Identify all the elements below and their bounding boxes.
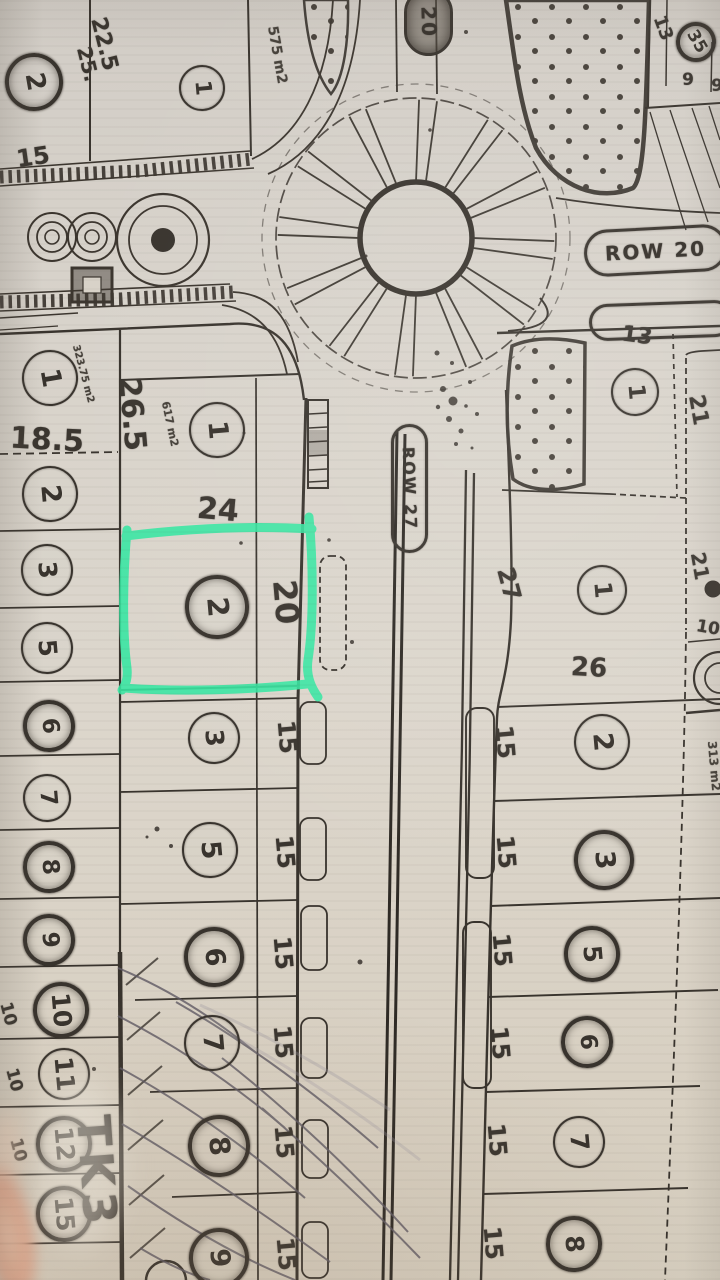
plot-number: 5: [578, 944, 608, 964]
plot-number-circle: 5: [562, 924, 623, 985]
plot-number-circle: 35: [669, 15, 720, 70]
dimension-label: 15: [487, 932, 518, 968]
plot-number-circle: 8: [21, 839, 77, 895]
plan-labels: 21351235678910111215123567891123567822.5…: [0, 0, 720, 1280]
paper-smudge: [38, 1080, 123, 1250]
plot-number-circle: 9: [186, 1225, 251, 1280]
plot-number: 2: [200, 595, 236, 618]
plot-number-circle: 2: [20, 464, 81, 525]
plot-number: 2: [35, 483, 68, 504]
plot-number: 1: [588, 580, 617, 599]
dimension-label: 15: [269, 1124, 300, 1160]
plot-number-circle: 10: [31, 980, 92, 1041]
area-label: 575 m2: [264, 25, 290, 85]
plot-number: 9: [204, 1247, 237, 1268]
dimension-label: 26: [570, 652, 608, 684]
plot-number: 1: [190, 79, 216, 96]
road-stamp: ROW 20: [583, 223, 720, 277]
plot-number-circle: 7: [21, 772, 73, 824]
road-stamp: [588, 299, 720, 341]
plot-number-circle: 7: [551, 1114, 607, 1170]
plot-number-circle: 2: [0, 48, 67, 115]
dimension-label: 20: [265, 578, 307, 626]
plot-number-circle: 1: [177, 63, 227, 113]
road-stamp: ROW 27: [391, 424, 428, 553]
plot-number-circle: 1: [575, 563, 629, 617]
plot-number: 35: [682, 26, 711, 57]
cadastral-plan-photo: 21351235678910111215123567891123567822.5…: [0, 0, 720, 1280]
plot-number-circle: 6: [21, 698, 77, 754]
dimension-label: 15: [271, 1236, 302, 1272]
plot-number: 3: [200, 728, 230, 748]
plot-number-circle: 3: [19, 542, 75, 598]
plot-number-circle: 8: [185, 1112, 252, 1179]
area-label: 617 m2: [159, 400, 181, 448]
plot-number: 5: [195, 839, 228, 860]
dimension-label: 24: [196, 491, 241, 530]
plot-number: 8: [203, 1135, 238, 1157]
dimension-label: 15: [15, 141, 52, 173]
area-label: 313 m2: [705, 740, 720, 791]
plot-number: 10: [46, 991, 78, 1028]
dimension-label: 15: [270, 834, 301, 870]
plot-number: 7: [565, 1132, 595, 1152]
dimension-label: 21: [683, 393, 713, 428]
plot-number-circle: 7: [182, 1013, 243, 1074]
plot-number: 2: [19, 70, 52, 93]
dimension-label: 15: [268, 935, 299, 971]
road-stamp-label: ROW 20: [604, 236, 706, 265]
plot-number-circle: 2: [182, 572, 251, 641]
dimension-label: 10: [1, 1066, 26, 1094]
plot-number-circle: 9: [21, 912, 77, 968]
plot-number: 1: [622, 383, 649, 401]
plot-number: 1: [34, 366, 68, 390]
dimension-label: 15: [478, 1225, 509, 1261]
plot-number: 1: [202, 419, 235, 440]
plot-number: 6: [199, 946, 232, 967]
plot-number-circle: 3: [571, 827, 636, 892]
plot-number: 2: [587, 731, 620, 752]
dimension-label: 15: [482, 1122, 513, 1158]
plot-number: 8: [560, 1234, 590, 1254]
plot-number: 7: [197, 1032, 230, 1053]
dimension-label: 15: [272, 719, 303, 755]
plot-number-circle: 3: [186, 710, 242, 766]
plot-number-circle: 5: [19, 620, 75, 676]
plot-number: 7: [34, 789, 61, 807]
road-stamp: 20: [404, 0, 453, 56]
plot-number-circle: 5: [180, 820, 241, 881]
plot-number: 3: [33, 560, 63, 580]
dimension-label: 13: [649, 13, 677, 44]
road-stamp-label: ROW 27: [399, 446, 421, 530]
dimension-label: 9: [711, 76, 720, 96]
dimension-label: 9: [682, 70, 694, 90]
dimension-label: 10: [0, 1000, 21, 1028]
dimension-label: 18.5: [9, 421, 85, 460]
dimension-label: 15: [491, 834, 522, 870]
plot-number-circle: 6: [181, 924, 246, 989]
plot-number: 3: [589, 849, 622, 870]
dimension-label: 27: [491, 564, 527, 604]
dimension-label: 15: [490, 724, 521, 760]
dimension-label: 15: [268, 1024, 299, 1060]
dimension-label: 26.5: [111, 376, 152, 453]
dimension-label: 10: [695, 616, 720, 640]
plot-number: 9: [36, 931, 63, 949]
dimension-label: 21: [686, 550, 714, 582]
dimension-label: 15: [485, 1025, 516, 1061]
plot-number-circle: 1: [187, 400, 248, 461]
road-stamp-label: 20: [416, 6, 441, 39]
plot-number-circle: 6: [559, 1014, 615, 1070]
plot-number: 8: [36, 858, 63, 876]
plot-number: 6: [574, 1033, 601, 1051]
plot-number-circle: 2: [572, 712, 633, 773]
plot-number: 5: [33, 638, 63, 658]
plot-number-circle: 1: [609, 366, 661, 418]
plot-number: 6: [36, 717, 63, 735]
plot-number-circle: 8: [544, 1214, 605, 1275]
